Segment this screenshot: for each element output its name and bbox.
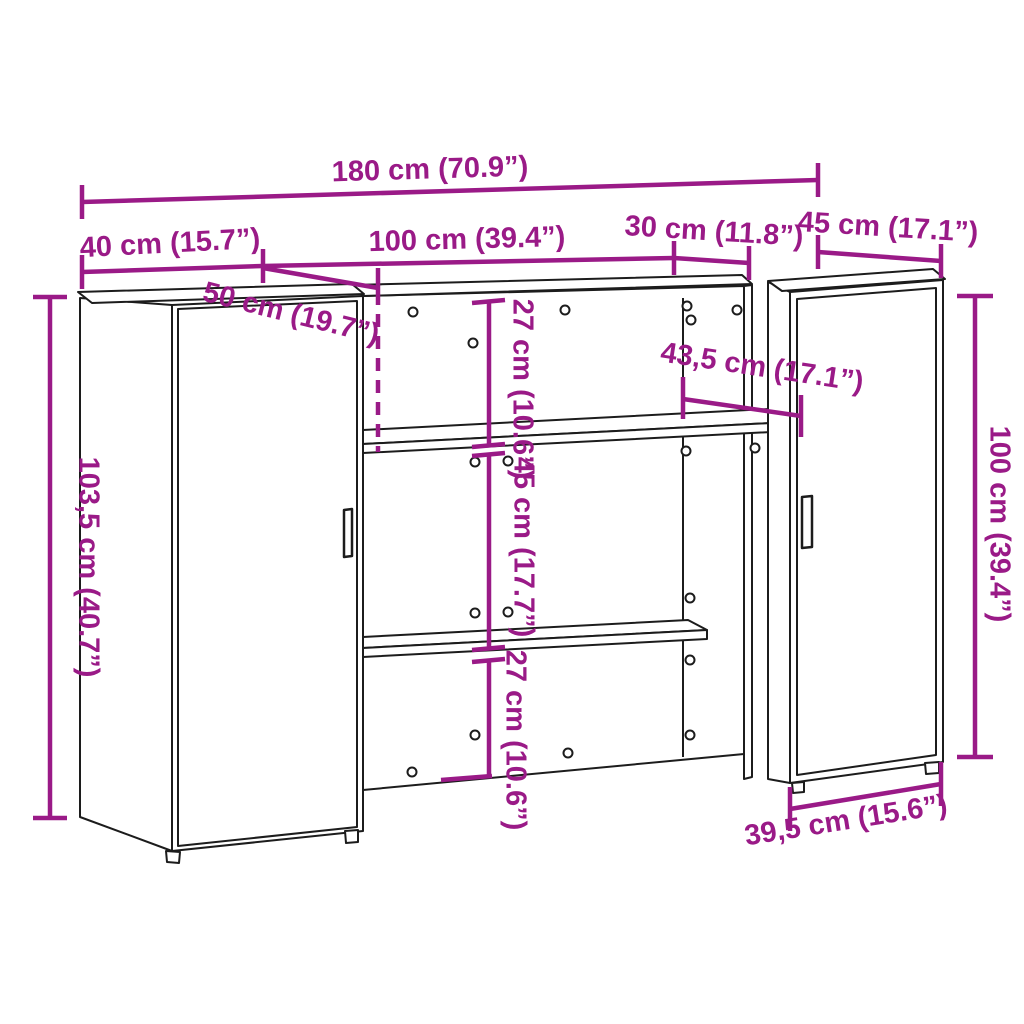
left-door-handle	[344, 509, 352, 557]
label-total-width: 180 cm (70.9”)	[331, 153, 528, 188]
label-middle-compartment-height: 45 cm (17.7”)	[509, 457, 538, 638]
label-upper-compartment-height: 27 cm (10.6”)	[508, 299, 537, 480]
right-cabinet-foot	[925, 762, 939, 774]
left-cabinet-foot	[345, 830, 358, 843]
label-right-cabinet-height: 100 cm (39.4”)	[985, 426, 1014, 623]
dim-left-cabinet-height	[33, 297, 67, 818]
label-middle-section-width: 100 cm (39.4”)	[368, 223, 565, 257]
right-cabinet	[768, 269, 945, 793]
right-door-handle	[802, 496, 812, 548]
left-cabinet	[78, 284, 364, 863]
right-cabinet-foot	[792, 782, 804, 793]
label-lower-compartment-height: 27 cm (10.6”)	[501, 650, 530, 831]
diagram-canvas: 180 cm (70.9”) 40 cm (15.7”) 100 cm (39.…	[0, 0, 1024, 1024]
left-cabinet-foot	[166, 851, 180, 863]
label-left-cabinet-height: 103,5 cm (40.7”)	[74, 457, 103, 678]
